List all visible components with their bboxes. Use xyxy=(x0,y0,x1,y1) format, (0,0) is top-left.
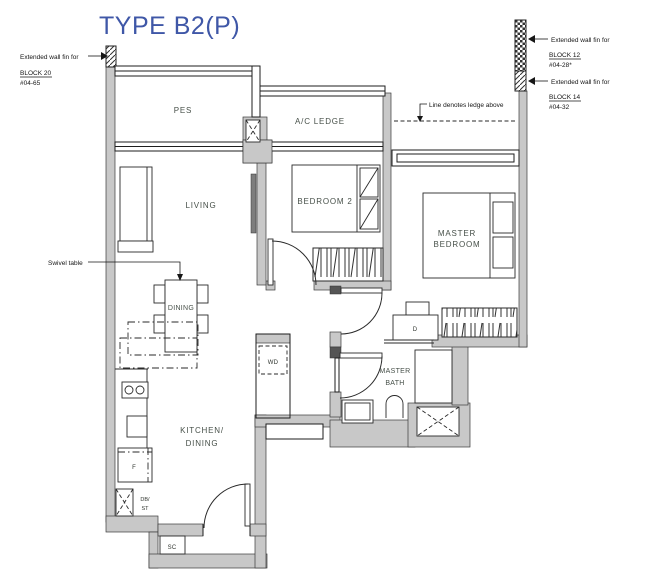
bedroom2-furniture xyxy=(268,165,383,285)
pillow xyxy=(493,202,513,233)
wall-entry-door-right xyxy=(250,524,266,536)
vanity xyxy=(342,400,373,423)
label-sc: SC xyxy=(168,545,177,551)
annotation-unit-04-65: #04-65 xyxy=(20,80,41,87)
label-living: LIVING xyxy=(185,201,216,210)
label-fridge: F xyxy=(132,465,136,471)
dresser-stool xyxy=(406,302,429,315)
entry-door-leaf xyxy=(245,484,250,526)
master-door-swing xyxy=(341,293,382,334)
dining-chair xyxy=(197,315,208,333)
entry-door-swing xyxy=(204,484,248,528)
wall-left xyxy=(106,64,115,522)
wall-master-right xyxy=(519,91,527,347)
annotation-block-12: BLOCK 12 xyxy=(549,52,580,59)
label-master-bedroom-1: MASTER xyxy=(438,229,476,238)
label-dining: DINING xyxy=(168,305,194,312)
wall-bath-bottom xyxy=(330,420,415,447)
label-wd: WD xyxy=(268,360,279,366)
bath-door-swing xyxy=(340,356,382,398)
master-door-leaf xyxy=(341,288,382,293)
master-wardrobe xyxy=(442,308,517,337)
label-ac-ledge: A/C LEDGE xyxy=(295,117,345,126)
windows-thin-walls xyxy=(115,66,519,166)
entry-door xyxy=(203,484,250,536)
label-pes: PES xyxy=(174,106,192,115)
bath-door-leaf xyxy=(340,353,382,358)
annotation-unit-04-32: #04-32 xyxy=(549,104,570,111)
exterior-ledge-notch xyxy=(266,424,323,439)
label-db: DB/ xyxy=(140,497,150,503)
annotation-swivel-table: Swivel table xyxy=(48,260,83,267)
label-kitchen-1: KITCHEN/ xyxy=(180,426,224,435)
plan-title: TYPE B2(P) xyxy=(99,12,240,40)
jamb-master-door-top xyxy=(330,286,341,294)
wall-entry-right xyxy=(255,415,266,568)
wd-niche-cap xyxy=(256,334,290,343)
label-bedroom2: BEDROOM 2 xyxy=(297,197,352,206)
dining-table xyxy=(165,280,197,352)
annotation-block-14: BLOCK 14 xyxy=(549,94,580,101)
label-master-bedroom-2: BEDROOM xyxy=(434,240,481,249)
arrow-left-icon xyxy=(528,35,535,43)
annotation-fin-right-bottom: Extended wall fin for xyxy=(551,79,610,86)
living-dining-furniture xyxy=(118,167,256,368)
arrow-left-icon xyxy=(528,77,535,85)
annotation-block-20: BLOCK 20 xyxy=(20,70,51,77)
bedroom2-door-leaf xyxy=(268,239,273,285)
label-st: ST xyxy=(141,506,149,512)
wall-hall-mid-jamb xyxy=(330,332,341,347)
wall-fin-right-block12 xyxy=(515,20,526,71)
wall-fin-left xyxy=(106,46,116,67)
wall-entry-door-left xyxy=(158,524,203,536)
label-master-bath-1: MASTER xyxy=(380,368,411,375)
wall-bath-left-lower xyxy=(330,392,341,417)
dining-chair xyxy=(154,285,165,303)
annotation-fin-right-top: Extended wall fin for xyxy=(551,37,610,44)
label-master-bath-2: BATH xyxy=(385,380,404,387)
pes-divider-wall xyxy=(252,66,260,117)
wall-bath-right xyxy=(452,343,468,405)
wall-pes-corner-block-top xyxy=(243,140,272,163)
label-dryer: D xyxy=(413,327,418,333)
bedroom2-door-swing xyxy=(272,241,316,285)
jamb-bath-door xyxy=(330,347,341,358)
kitchen-sink xyxy=(127,416,147,437)
bedroom2-wardrobe xyxy=(313,248,383,281)
dining-chair xyxy=(197,285,208,303)
floor-plan-page: TYPE B2(P) xyxy=(0,0,664,570)
wall-fin-right-block14 xyxy=(515,71,526,91)
annotation-fin-left: Extended wall fin for xyxy=(20,54,79,61)
master-window-inner xyxy=(397,154,514,162)
label-kitchen-2: DINING xyxy=(186,439,219,448)
wd-niche xyxy=(256,334,290,418)
bath-left-wall xyxy=(335,358,339,392)
floor-plan: TYPE B2(P) xyxy=(0,0,664,570)
wall-bedroom2-right xyxy=(383,93,391,290)
shower xyxy=(415,350,452,403)
wd-niche-outline xyxy=(256,334,290,418)
dining-chair xyxy=(154,315,165,333)
sofa-side-table xyxy=(118,241,153,252)
toilet xyxy=(386,396,403,419)
wall-living-right xyxy=(257,148,266,285)
annotation-unit-04-28: #04-28* xyxy=(549,62,572,69)
wall-bottom xyxy=(149,554,267,568)
sliding-door-panel xyxy=(251,174,256,233)
wall-bottom-step-h xyxy=(106,516,158,532)
annotation-ledge: Line denotes ledge above xyxy=(429,102,504,109)
pillow xyxy=(493,237,513,268)
